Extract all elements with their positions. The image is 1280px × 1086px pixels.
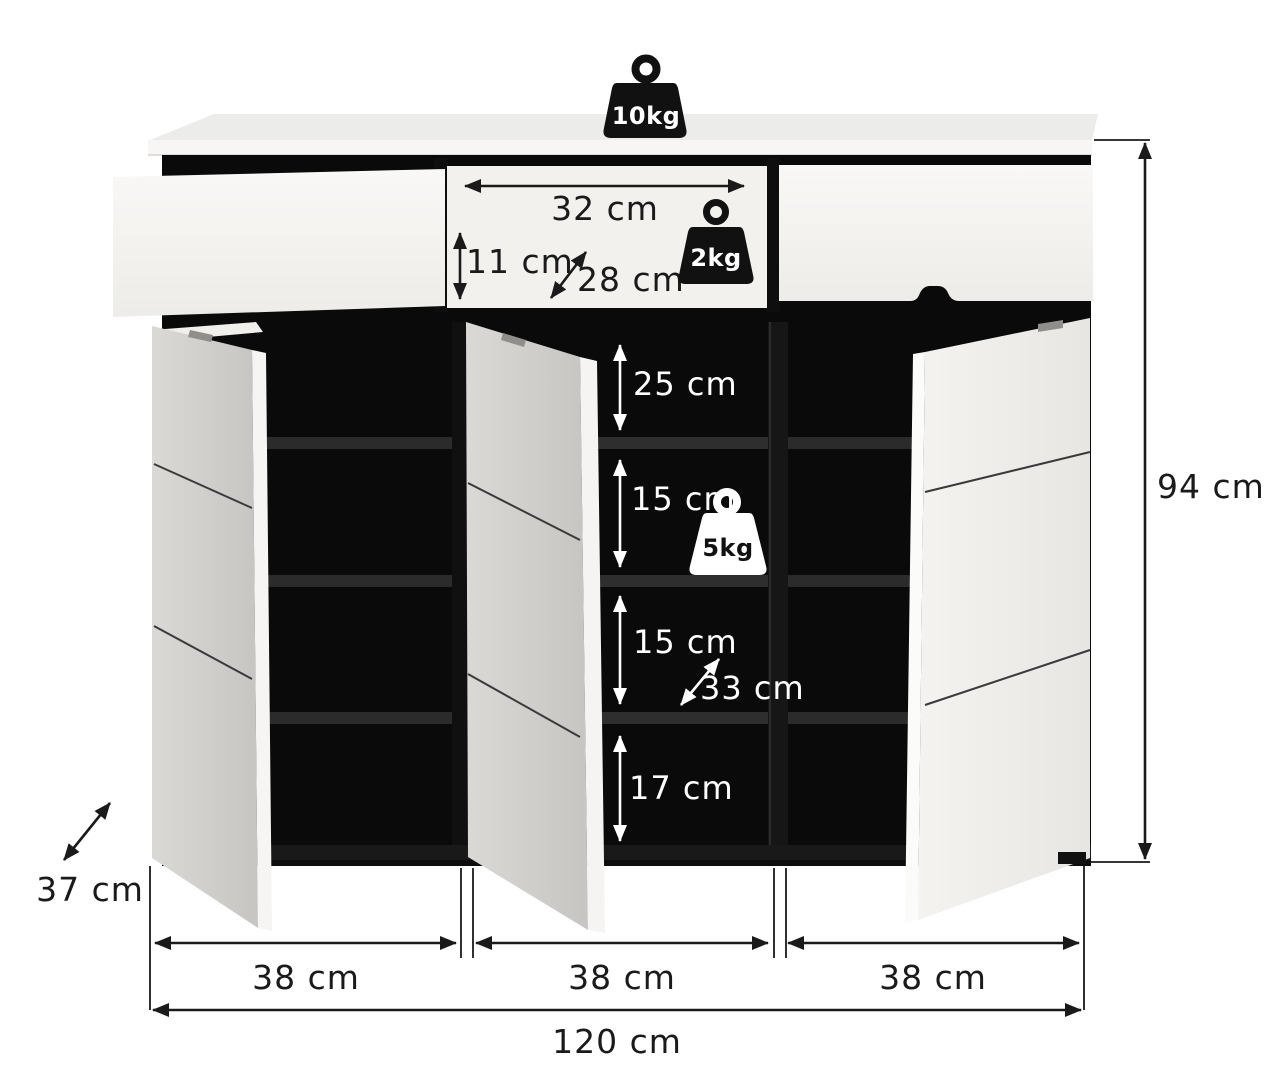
compartment-top-label: 25 cm [633,365,738,403]
diagram-stage: 32 cm 11 cm 28 cm 25 cm 15 cm 15 cm 33 c… [0,0,1280,1086]
middle-door [466,322,605,933]
left-door [152,326,272,931]
section1-width-label: 38 cm [252,958,360,997]
cabinet-diagram: 32 cm 11 cm 28 cm 25 cm 15 cm 15 cm 33 c… [0,0,1280,1086]
left-drawer [113,169,445,317]
section3-width-label: 38 cm [879,958,987,997]
divider [452,322,468,845]
interior-depth-label: 33 cm [700,669,805,707]
shelf-load-label: 5kg [702,534,753,562]
drawer-depth-label: 28 cm [577,260,685,299]
drawer-load-label: 2kg [690,244,741,272]
drawer-height-label: 11 cm [466,242,574,281]
right-drawer [779,165,1093,301]
drawer-gap [767,158,780,312]
depth-label: 37 cm [36,870,144,909]
compartment-bottom-label: 17 cm [629,769,734,807]
total-width-label: 120 cm [552,1022,682,1061]
cabinet-foot [1058,852,1086,864]
height-label: 94 cm [1157,467,1265,506]
top-load-label: 10kg [612,102,681,130]
section2-width-label: 38 cm [568,958,676,997]
right-door [905,318,1090,923]
compartment-lower-mid-label: 15 cm [633,623,738,661]
drawer-width-label: 32 cm [551,189,659,228]
